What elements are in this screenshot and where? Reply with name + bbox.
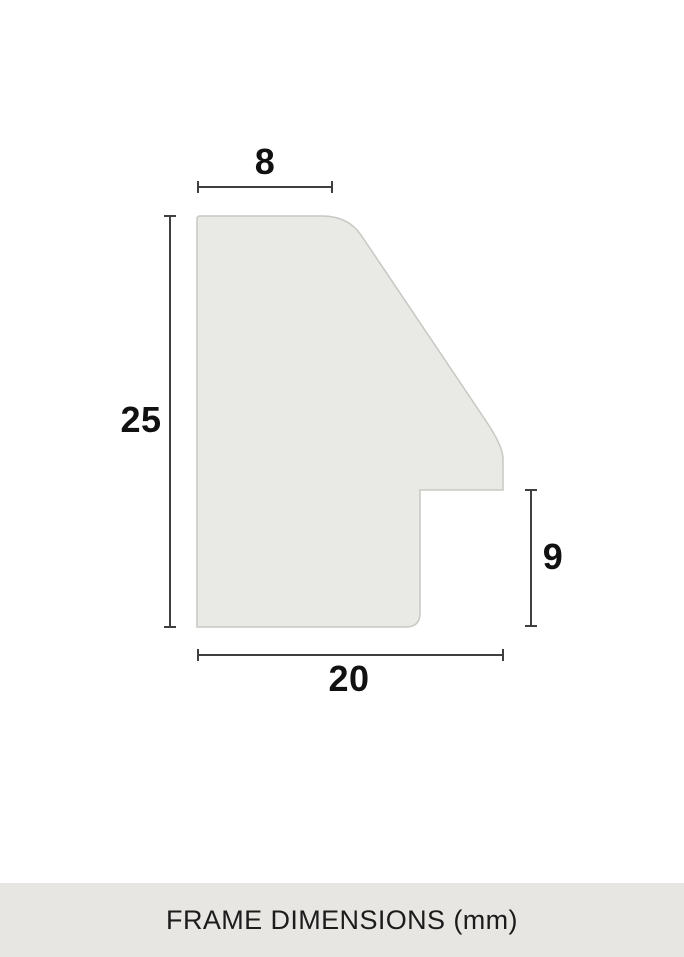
dimension-line-rabbet-depth <box>525 490 537 626</box>
dimension-label-top-width: 8 <box>255 144 276 180</box>
dimension-label-left-height: 25 <box>120 402 161 438</box>
caption-text: FRAME DIMENSIONS (mm) <box>166 905 518 936</box>
dimension-line-top-width <box>198 181 332 193</box>
moulding-profile-shape <box>197 216 503 627</box>
frame-dimensions-diagram: 8 25 9 20 FRAME DIMENSIONS (mm) <box>0 0 684 957</box>
dimension-label-bottom-width: 20 <box>328 661 369 697</box>
caption-bar: FRAME DIMENSIONS (mm) <box>0 883 684 957</box>
dimension-label-rabbet-depth: 9 <box>543 539 564 575</box>
dimension-line-left-height <box>164 216 176 627</box>
profile-cross-section-svg <box>0 0 684 957</box>
